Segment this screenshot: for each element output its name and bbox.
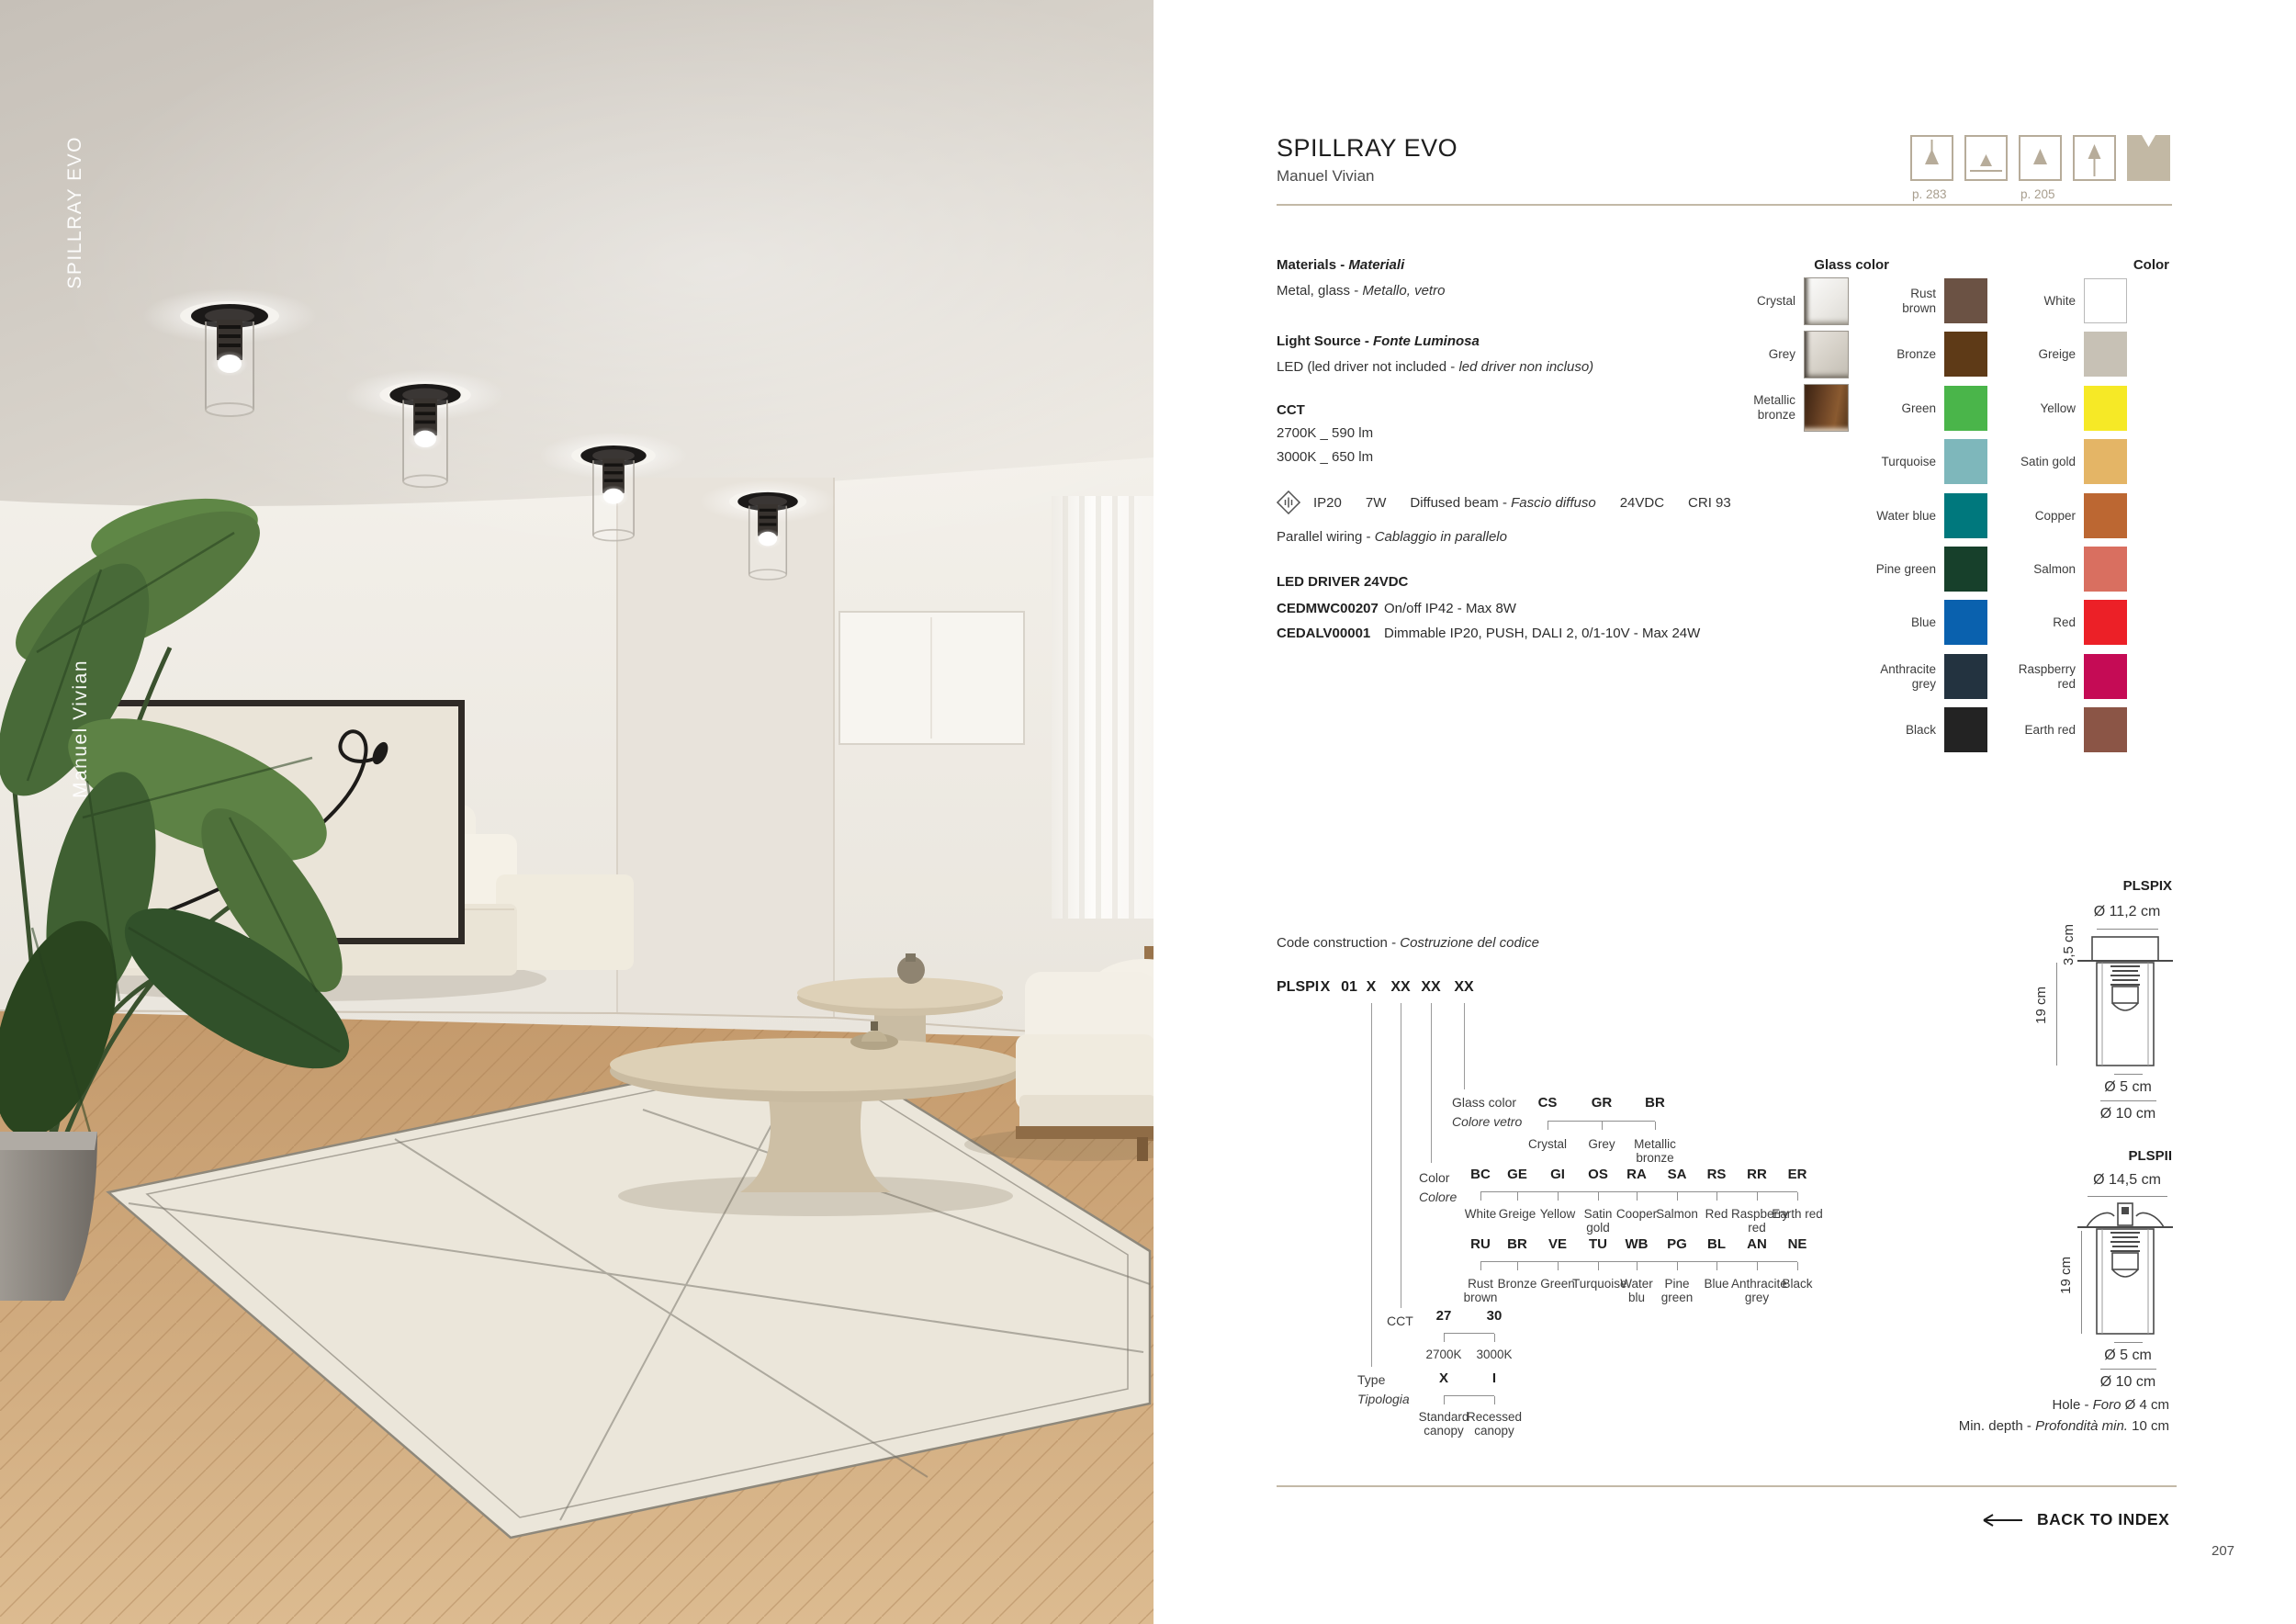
- code-bracket: [1444, 1333, 1494, 1342]
- color-swatch-row: Blue: [1874, 600, 1987, 645]
- color-code: NE: [1788, 1236, 1807, 1252]
- product-photo: SPILLRAY EVO Manuel Vivian: [0, 0, 1154, 1624]
- swatch-label: Pine green: [1874, 562, 1936, 576]
- cri-value: CRI 93: [1688, 495, 1731, 511]
- color-swatch-row: White: [2013, 278, 2127, 323]
- cct-row-label: CCT: [1387, 1312, 1413, 1331]
- color-code: PG: [1667, 1236, 1687, 1252]
- materials-header: Materials - Materiali: [1277, 257, 1404, 273]
- page-number: 207: [2212, 1543, 2234, 1559]
- color-swatch: [2084, 386, 2127, 431]
- dimension-line: [2081, 1231, 2082, 1334]
- code-bracket: [1548, 1121, 1655, 1130]
- swatch-label: Red: [2013, 615, 2076, 629]
- materials-header-it: Materiali: [1348, 257, 1404, 273]
- canopy-height-label: 3,5 cm: [2061, 924, 2077, 965]
- swatch-label: Salmon: [2013, 562, 2076, 576]
- cct-value-2700: 2700K _ 590 lm: [1277, 425, 1373, 441]
- swatch-label: Crystal: [1733, 294, 1795, 308]
- code-construction-title: Code construction - Costruzione del codi…: [1277, 935, 1539, 951]
- color-swatch: [2084, 493, 2127, 538]
- color-swatch: [1944, 707, 1987, 752]
- glass-swatch-grey: [1804, 331, 1849, 378]
- swatch-label: Earth red: [2013, 723, 2076, 737]
- led-driver-header: LED DRIVER 24VDC: [1277, 574, 1408, 590]
- min-depth-note: Min. depth - Profondità min. 10 cm: [1930, 1418, 2169, 1434]
- color-swatch: [2084, 278, 2127, 323]
- glass-code: GR: [1592, 1095, 1613, 1111]
- glass-code-label: Grey: [1576, 1137, 1627, 1151]
- type-code-label: Recessed canopy: [1466, 1410, 1523, 1438]
- code-part: 01: [1341, 979, 1357, 996]
- type-row-label-en: Type: [1357, 1372, 1385, 1387]
- dimension-line: [2088, 1196, 2167, 1197]
- color-swatch: [1944, 600, 1987, 645]
- color-row-label-it: Colore: [1419, 1190, 1457, 1204]
- ip-rating: IP20: [1313, 495, 1342, 511]
- driver-desc: On/off IP42 - Max 8W: [1384, 601, 1516, 616]
- glass-code-label: Crystal: [1522, 1137, 1573, 1151]
- glass-swatch-row: Metallic bronze: [1733, 385, 1849, 430]
- color-swatch: [2084, 439, 2127, 484]
- swatch-label: Turquoise: [1874, 455, 1936, 468]
- color-code: GI: [1550, 1167, 1565, 1182]
- color-swatch-row: Pine green: [1874, 547, 1987, 592]
- materials-value-it: Metallo, vetro: [1362, 283, 1445, 299]
- page-title: SPILLRAY EVO: [1277, 134, 1458, 163]
- swatch-label: Water blue: [1874, 509, 1936, 523]
- color-code: WB: [1626, 1236, 1649, 1252]
- color-swatch-row: Red: [2013, 600, 2127, 645]
- color-swatch: [2084, 547, 2127, 592]
- code-part: XX: [1421, 979, 1440, 996]
- color-swatch-row: Greige: [2013, 332, 2127, 377]
- code-part: PLSPI: [1277, 979, 1319, 996]
- diameter-small-label: Ø 5 cm: [2073, 1079, 2183, 1096]
- color-swatch: [1944, 332, 1987, 377]
- min-depth-en: Min. depth -: [1959, 1418, 2035, 1434]
- code-part: X: [1367, 979, 1377, 996]
- glass-code-label: Metallic bronze: [1629, 1137, 1681, 1165]
- materials-header-en: Materials -: [1277, 257, 1348, 273]
- swatch-label: Black: [1874, 723, 1936, 737]
- color-row-label: ColorColore: [1419, 1168, 1457, 1207]
- swatch-label: Metallic bronze: [1733, 393, 1795, 421]
- glass-code: CS: [1538, 1095, 1558, 1111]
- color-code: SA: [1668, 1167, 1687, 1182]
- table-variant-icon[interactable]: [1964, 135, 2008, 181]
- cct-value-3000: 3000K _ 650 lm: [1277, 449, 1373, 465]
- dimension-line: [2056, 963, 2057, 1066]
- cct-code-label: 3000K: [1469, 1348, 1520, 1361]
- glass-color-header: Glass color: [1733, 257, 1889, 273]
- beam-type-it: Fascio diffuso: [1511, 495, 1596, 511]
- min-depth-it: Profondità min.: [2035, 1418, 2128, 1434]
- dimension-line: [2097, 929, 2158, 930]
- color-swatch: [1944, 278, 1987, 323]
- glass-row-label-it: Colore vetro: [1452, 1114, 1522, 1129]
- driver-row: CEDMWC00207 On/off IP42 - Max 8W: [1277, 601, 1516, 616]
- color-swatch: [1944, 439, 1987, 484]
- color-swatch: [2084, 600, 2127, 645]
- beam-type: Diffused beam - Fascio diffuso: [1410, 495, 1595, 511]
- code-connector-line: [1431, 1003, 1432, 1163]
- color-code: RU: [1470, 1236, 1491, 1252]
- driver-desc: Dimmable IP20, PUSH, DALI 2, 0/1-10V - M…: [1384, 626, 1700, 641]
- header-divider: [1277, 204, 2172, 206]
- color-swatch-row: Satin gold: [2013, 439, 2127, 484]
- color-swatch-row: Bronze: [1874, 332, 1987, 377]
- light-source-header: Light Source - Fonte Luminosa: [1277, 333, 1480, 349]
- driver-row: CEDALV00001 Dimmable IP20, PUSH, DALI 2,…: [1277, 626, 1700, 641]
- swatch-label: Blue: [1874, 615, 1936, 629]
- swatch-label: Copper: [2013, 509, 2076, 523]
- hole-note-en: Hole -: [2052, 1397, 2092, 1413]
- diameter-top-label: Ø 11,2 cm: [2072, 904, 2182, 920]
- left-arrow-icon: [1982, 1513, 2024, 1528]
- color-code: AN: [1747, 1236, 1767, 1252]
- diameter-big-label: Ø 10 cm: [2073, 1106, 2183, 1122]
- hole-note-it: Foro: [2093, 1397, 2122, 1413]
- spot-variant-icon[interactable]: [2019, 135, 2062, 181]
- color-code: OS: [1588, 1167, 1608, 1182]
- hole-note: Hole - Foro Ø 4 cm: [1930, 1397, 2169, 1413]
- wiring-note-it: Cablaggio in parallelo: [1375, 529, 1507, 545]
- swatch-label: Yellow: [2013, 401, 2076, 415]
- color-code-label: Black: [1772, 1277, 1823, 1291]
- cct-code: 30: [1487, 1308, 1503, 1324]
- light-source-header-en: Light Source -: [1277, 333, 1373, 349]
- materials-value: Metal, glass - Metallo, vetro: [1277, 283, 1445, 299]
- hole-note-value: Ø 4 cm: [2121, 1397, 2169, 1413]
- swatch-label: Rust brown: [1874, 287, 1936, 314]
- color-swatch-row: Anthracite grey: [1874, 654, 1987, 699]
- color-header: Color: [2013, 257, 2169, 273]
- light-source-value: LED (led driver not included - led drive…: [1277, 359, 1593, 375]
- pendant-page-ref: p. 283: [1912, 187, 1947, 201]
- color-code: BC: [1470, 1167, 1491, 1182]
- materials-value-en: Metal, glass -: [1277, 283, 1362, 299]
- code-part: XX: [1454, 979, 1473, 996]
- room-illustration: [0, 0, 1154, 1624]
- color-swatch: [1944, 493, 1987, 538]
- type-row-label: TypeTipologia: [1357, 1370, 1410, 1409]
- glass-row-label: Glass colorColore vetro: [1452, 1093, 1522, 1132]
- dimension-line: [2114, 1342, 2143, 1343]
- color-code: BL: [1707, 1236, 1726, 1252]
- diameter-top-label: Ø 14,5 cm: [2072, 1172, 2182, 1189]
- driver-code: CEDALV00001: [1277, 626, 1384, 641]
- color-swatch-row: Green: [1874, 386, 1987, 431]
- color-code-label: Earth red: [1772, 1207, 1823, 1221]
- swatch-label: Greige: [2013, 347, 2076, 361]
- color-code: RR: [1747, 1167, 1767, 1182]
- ceiling-variant-icon-active[interactable]: [2127, 135, 2170, 181]
- color-code: ER: [1788, 1167, 1807, 1182]
- color-swatch: [1944, 654, 1987, 699]
- diagram-title-plspii: PLSPII: [2062, 1148, 2172, 1164]
- wiring-note-en: Parallel wiring -: [1277, 529, 1375, 545]
- beam-type-en: Diffused beam -: [1410, 495, 1511, 511]
- color-code: RS: [1707, 1167, 1727, 1182]
- designer-name: Manuel Vivian: [1277, 167, 1374, 186]
- type-code: I: [1492, 1370, 1496, 1386]
- cct-header: CCT: [1277, 402, 1305, 418]
- swatch-label: Green: [1874, 401, 1936, 415]
- diameter-small-label: Ø 5 cm: [2073, 1348, 2183, 1364]
- light-source-value-en: LED (led driver not included -: [1277, 359, 1458, 375]
- glass-swatch-row: Crystal: [1733, 278, 1849, 323]
- catalog-page: SPILLRAY EVO Manuel Vivian SPILLRAY EVO …: [0, 0, 2296, 1624]
- color-swatch: [2084, 332, 2127, 377]
- color-swatch-row: Earth red: [2013, 707, 2127, 752]
- vertical-product-title: SPILLRAY EVO: [64, 136, 86, 289]
- glass-code: BR: [1645, 1095, 1665, 1111]
- pendant-variant-icon[interactable]: [1910, 135, 1953, 181]
- swatch-label: Satin gold: [2013, 455, 2076, 468]
- code-connector-line: [1371, 1003, 1372, 1367]
- swatch-label: White: [2013, 294, 2076, 308]
- back-to-index-button[interactable]: BACK TO INDEX: [1982, 1510, 2169, 1529]
- color-swatch-row: Rust brown: [1874, 278, 1987, 323]
- min-depth-value: 10 cm: [2128, 1418, 2169, 1434]
- wattage: 7W: [1366, 495, 1387, 511]
- type-code-label: Standard canopy: [1415, 1410, 1472, 1438]
- plspii-drawing: [2077, 1200, 2173, 1337]
- body-height-label: 19 cm: [2058, 1257, 2074, 1294]
- color-swatch-row: Yellow: [2013, 386, 2127, 431]
- code-bracket: [1480, 1191, 1797, 1201]
- code-part: XX: [1390, 979, 1410, 996]
- type-code: X: [1439, 1370, 1448, 1386]
- spot-page-ref: p. 205: [2020, 187, 2055, 201]
- swatch-label: Anthracite grey: [1874, 662, 1936, 690]
- vertical-designer-name: Manuel Vivian: [70, 660, 92, 798]
- color-code: GE: [1507, 1167, 1527, 1182]
- color-swatch-row: Water blue: [1874, 493, 1987, 538]
- color-swatch: [2084, 707, 2127, 752]
- plspix-drawing: [2077, 931, 2173, 1069]
- code-connector-line: [1464, 1003, 1465, 1089]
- cct-code: 27: [1436, 1308, 1452, 1324]
- glass-swatch-row: Grey: [1733, 332, 1849, 377]
- color-swatch: [2084, 654, 2127, 699]
- dimension-line: [2100, 1369, 2156, 1370]
- light-source-header-it: Fonte Luminosa: [1373, 333, 1480, 349]
- dimension-line: [2114, 1074, 2143, 1075]
- color-code: BR: [1507, 1236, 1527, 1252]
- code-bracket: [1444, 1395, 1494, 1404]
- cct-code-label: 2700K: [1418, 1348, 1469, 1361]
- code-title-en: Code construction -: [1277, 935, 1400, 951]
- color-swatch-row: Black: [1874, 707, 1987, 752]
- diffused-beam-icon: [1277, 491, 1300, 514]
- voltage: 24VDC: [1620, 495, 1664, 511]
- color-swatch-row: Copper: [2013, 493, 2127, 538]
- driver-code: CEDMWC00207: [1277, 601, 1384, 616]
- back-to-index-label: BACK TO INDEX: [2037, 1510, 2169, 1529]
- footer-divider: [1277, 1485, 2177, 1487]
- color-swatch: [1944, 386, 1987, 431]
- daybed: [1016, 946, 1154, 1161]
- glass-swatch-crystal: [1804, 277, 1849, 325]
- code-part: X: [1321, 979, 1331, 996]
- diameter-big-label: Ø 10 cm: [2073, 1374, 2183, 1391]
- code-connector-line: [1401, 1003, 1401, 1308]
- type-row-label-it: Tipologia: [1357, 1392, 1410, 1406]
- swatch-label: Bronze: [1874, 347, 1936, 361]
- diagram-title-plspix: PLSPIX: [2062, 878, 2172, 894]
- floor-variant-icon[interactable]: [2073, 135, 2116, 181]
- color-code: TU: [1589, 1236, 1607, 1252]
- color-code: RA: [1626, 1167, 1647, 1182]
- swatch-label: Grey: [1733, 347, 1795, 361]
- color-swatch-row: Raspberry red: [2013, 654, 2127, 699]
- color-row-label-en: Color: [1419, 1170, 1449, 1185]
- swatch-label: Raspberry red: [2013, 662, 2076, 690]
- wiring-note: Parallel wiring - Cablaggio in parallelo: [1277, 529, 1507, 545]
- code-bracket: [1480, 1261, 1797, 1270]
- beam-spec-row: IP20 7W Diffused beam - Fascio diffuso 2…: [1277, 491, 1731, 514]
- color-swatch-row: Turquoise: [1874, 439, 1987, 484]
- color-swatch: [1944, 547, 1987, 592]
- color-swatch-row: Salmon: [2013, 547, 2127, 592]
- light-source-value-it: led driver non incluso): [1458, 359, 1593, 375]
- code-title-it: Costruzione del codice: [1400, 935, 1539, 951]
- body-height-label: 19 cm: [2033, 987, 2049, 1024]
- glass-row-label-en: Glass color: [1452, 1095, 1516, 1110]
- dimension-line: [2100, 1100, 2156, 1101]
- glass-swatch-bronze: [1804, 384, 1849, 432]
- color-code: VE: [1548, 1236, 1567, 1252]
